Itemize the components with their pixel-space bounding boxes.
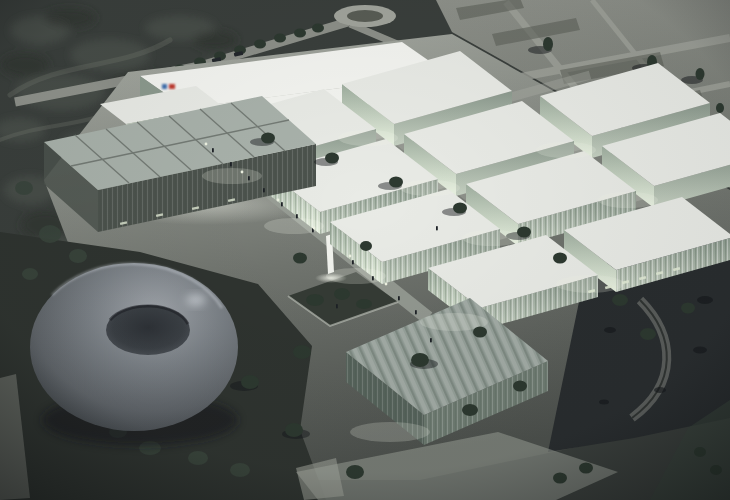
aerial-campus-render <box>0 0 730 500</box>
render-canvas <box>0 0 730 500</box>
vignette-overlay <box>0 0 730 500</box>
